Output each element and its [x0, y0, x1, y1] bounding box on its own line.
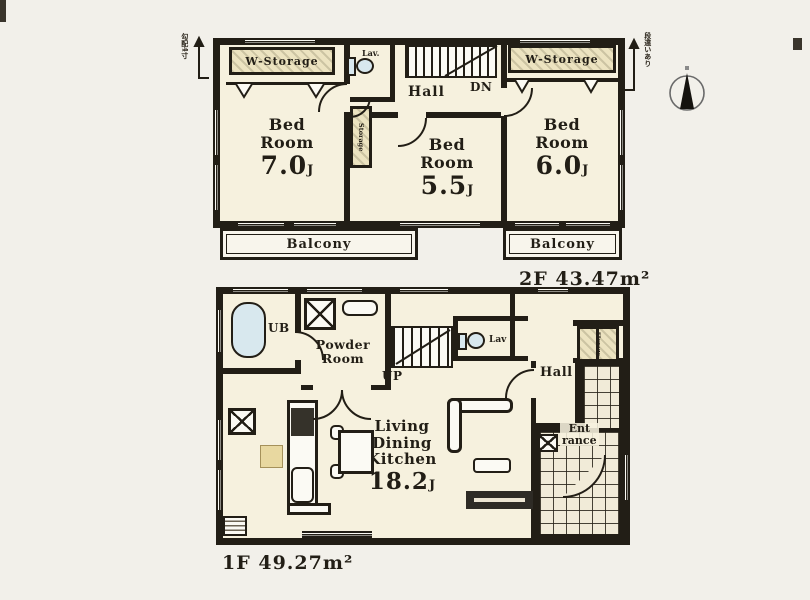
closet-front-wall — [507, 78, 618, 82]
window — [216, 310, 223, 352]
lavatory-label-2f: Lav. — [362, 48, 379, 58]
floor-1f-area-value: 49.27m² — [258, 552, 353, 574]
toilet-icon — [347, 57, 356, 76]
toilet-icon — [467, 332, 485, 349]
tv-board-icon — [466, 491, 533, 509]
annotation-arrowhead — [195, 38, 203, 46]
door-opening — [398, 112, 426, 118]
stairs-up-label: UP — [382, 369, 403, 383]
wall — [501, 45, 507, 221]
walk-in-storage-left-label: W-Storage — [245, 55, 318, 68]
ldk-size: 18.2 — [369, 468, 429, 495]
scan-smudge — [0, 0, 6, 22]
kitchen-sink-icon — [291, 467, 314, 503]
entrance-label: Ent rance — [560, 423, 599, 446]
unit-bath-label: UB — [268, 321, 290, 335]
bedroom-left-size: 7.0 — [261, 151, 308, 180]
stove-icon — [291, 408, 314, 436]
wall — [453, 316, 528, 321]
door-opening — [501, 88, 507, 116]
window — [538, 287, 568, 294]
balcony-left-label: Balcony — [287, 237, 352, 252]
wall — [344, 97, 395, 102]
window — [238, 221, 284, 228]
floor-plan-document: W-Storage W-Storage Lav. DN Hall Storage… — [0, 0, 810, 600]
closet-divider — [596, 328, 599, 360]
staircase-down — [405, 45, 497, 78]
north-compass-icon — [670, 66, 704, 110]
roof-annotation-left: 勾配4寸 — [181, 33, 189, 83]
toilet-icon — [458, 333, 467, 350]
closet-icon — [228, 408, 256, 435]
window — [302, 531, 372, 538]
hall-label-2f: Hall — [408, 84, 445, 100]
balcony-right-label: Balcony — [530, 237, 595, 252]
refrigerator-icon — [260, 445, 283, 468]
powder-room-label: Powder Room — [301, 338, 385, 366]
bedroom-5-5: Bed Room 5.5J — [397, 136, 497, 200]
bathtub-icon — [231, 302, 266, 358]
window — [566, 221, 610, 228]
window — [216, 470, 223, 510]
bedroom-7: Bed Room 7.0J — [237, 116, 337, 180]
front-door — [623, 455, 630, 500]
door-opening — [295, 332, 301, 360]
wall — [223, 368, 301, 374]
tv-board-detail — [474, 498, 525, 502]
wall — [390, 45, 395, 102]
walk-in-storage-right-label: W-Storage — [525, 53, 598, 66]
bedroom-6: Bed Room 6.0J — [512, 116, 612, 180]
bedroom-right-name: Bed Room — [512, 116, 612, 151]
annotation-arrow-left — [199, 44, 209, 78]
powder-room: Powder Room — [301, 338, 385, 366]
lavatory-label-1f: Lav — [489, 335, 506, 345]
window — [618, 110, 625, 155]
walk-in-storage-left: W-Storage — [229, 47, 335, 75]
window — [216, 420, 223, 460]
window — [515, 221, 559, 228]
wall — [453, 356, 528, 361]
balcony-right: Balcony — [503, 228, 622, 260]
window — [233, 287, 288, 294]
floor-1f-area: 1F 49.27m² — [222, 552, 353, 574]
staircase-up — [391, 326, 453, 368]
dining-table-icon — [338, 430, 374, 474]
sofa-icon — [447, 398, 462, 453]
door-opening — [344, 84, 350, 112]
floor-1f-label: 1F — [222, 552, 251, 574]
bedroom-right-size: 6.0 — [536, 151, 583, 180]
door-opening — [313, 385, 371, 390]
kitchen-counter-base — [287, 503, 331, 515]
roof-annotation-right: 段違いあり — [644, 32, 652, 92]
cabinet-icon — [223, 516, 247, 536]
window — [213, 165, 220, 210]
door-opening — [531, 368, 536, 398]
window — [245, 38, 315, 45]
window — [618, 165, 625, 210]
window — [307, 287, 362, 294]
wall — [510, 294, 515, 361]
bedroom-center-name: Bed Room — [397, 136, 497, 171]
shoe-cabinet-icon — [538, 434, 558, 452]
bedroom-center-size: 5.5 — [421, 171, 468, 200]
storage-strip-label: Storage — [357, 123, 365, 151]
annotation-arrowhead — [630, 40, 638, 48]
walk-in-storage-right: W-Storage — [508, 45, 616, 73]
storage-strip: Storage — [350, 106, 372, 168]
window — [520, 38, 590, 45]
low-table-icon — [473, 458, 511, 473]
stairs-dn-label: DN — [470, 80, 492, 94]
bedroom-left-name: Bed Room — [237, 116, 337, 151]
hall-label-1f: Hall — [540, 365, 573, 380]
window — [294, 221, 336, 228]
balcony-left: Balcony — [220, 228, 418, 260]
closet-front-wall — [226, 82, 344, 85]
scan-smudge — [793, 38, 802, 50]
washing-machine-icon — [304, 298, 336, 330]
window — [400, 287, 448, 294]
toilet-icon — [356, 58, 374, 74]
window — [400, 221, 480, 228]
sink-icon — [342, 300, 378, 316]
window — [213, 110, 220, 155]
